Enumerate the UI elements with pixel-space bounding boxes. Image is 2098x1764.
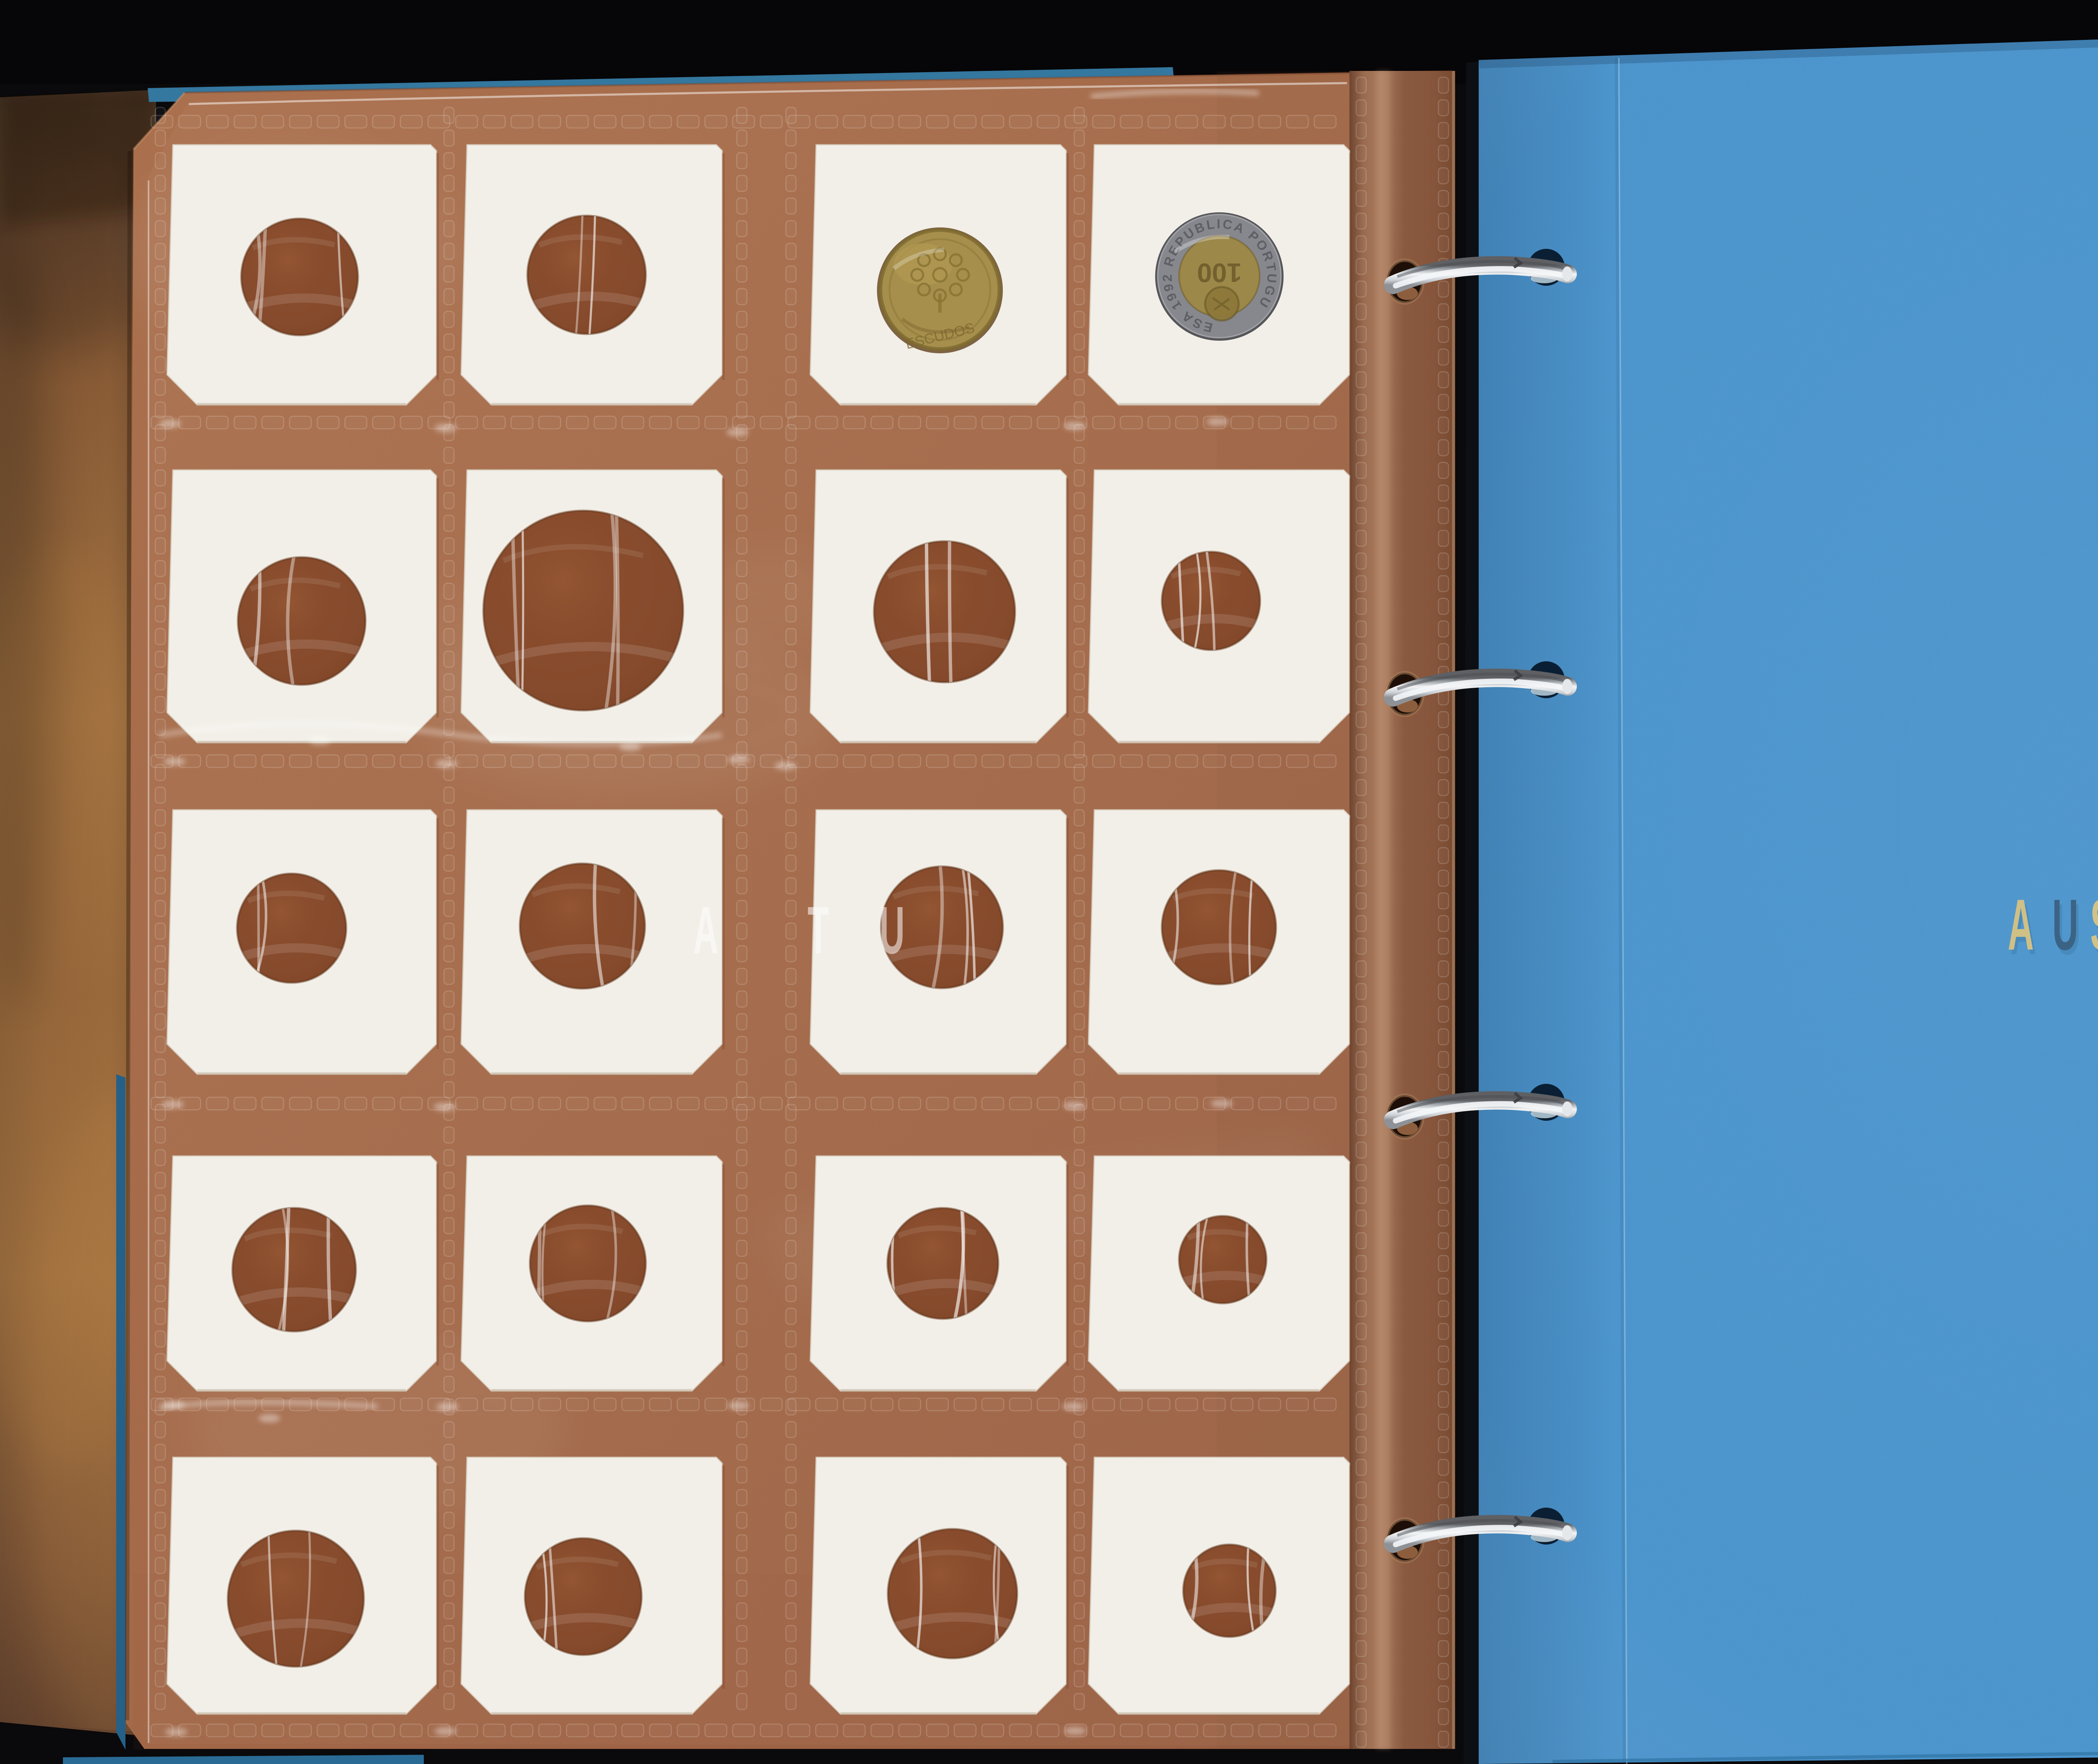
svg-text:S: S: [2090, 884, 2098, 965]
svg-text:100: 100: [1197, 258, 1242, 288]
svg-text:A: A: [693, 893, 718, 968]
svg-text:T: T: [808, 893, 829, 968]
svg-text:U: U: [879, 893, 905, 968]
svg-text:A: A: [2008, 884, 2034, 965]
svg-text:U: U: [2052, 884, 2078, 965]
